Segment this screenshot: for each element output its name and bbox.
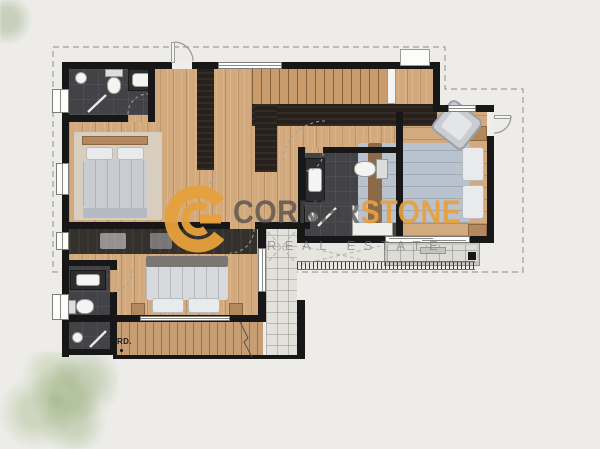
bathroom3-door-opening bbox=[110, 270, 117, 292]
stair-newel bbox=[387, 68, 396, 104]
balcony-railing bbox=[297, 261, 475, 270]
entry-door-leaf bbox=[171, 42, 175, 63]
roof-drain-label: RD. bbox=[117, 337, 132, 346]
bathroom3-toilet-tank bbox=[68, 300, 76, 314]
master-top-window bbox=[448, 105, 476, 112]
entry-door-swing bbox=[175, 42, 193, 61]
bedroom1-bed bbox=[83, 160, 147, 208]
bathroom1-wall-right bbox=[148, 68, 155, 122]
bedroom1-bed-foot bbox=[83, 208, 147, 218]
bathroom1-shower-head bbox=[75, 72, 87, 84]
bedroom2-terrace-window bbox=[258, 248, 266, 292]
bathroom1-toilet-tank bbox=[105, 69, 123, 77]
tree-illustration bbox=[0, 352, 118, 449]
wardrobe-clothes bbox=[150, 233, 172, 249]
bedroom2-bed-throw bbox=[146, 256, 228, 267]
stair-side-wall bbox=[255, 104, 277, 172]
bedroom1-pillow-right bbox=[117, 147, 144, 160]
roof-drain-dot bbox=[120, 349, 123, 352]
bathroom3-wall-top bbox=[62, 260, 117, 266]
stair-railing bbox=[252, 104, 437, 126]
tree-edge-smudge bbox=[0, 0, 34, 44]
bathroom2-toilet bbox=[354, 161, 376, 177]
floor-plan: CORNERSTONE REAL ESTATE RD. bbox=[0, 0, 600, 449]
bathroom3-sink bbox=[76, 274, 100, 286]
bedroom2-bottom-window bbox=[140, 316, 230, 321]
bedroom1-headboard bbox=[82, 136, 148, 145]
watermark-brand: CORNERSTONE bbox=[233, 194, 461, 231]
bedroom2-left-window bbox=[56, 232, 69, 250]
bathroom2-door-opening bbox=[305, 147, 323, 153]
entry-door-opening bbox=[172, 62, 192, 69]
bedroom1-window bbox=[56, 163, 69, 195]
bathroom3-shower-head bbox=[72, 332, 83, 343]
bathroom1-toilet bbox=[107, 77, 121, 94]
master-door-leaf bbox=[494, 115, 511, 119]
bedroom1-pillow-left bbox=[86, 147, 113, 160]
bathroom3-wall-bottom bbox=[62, 349, 117, 355]
lower-roof-edge bbox=[113, 355, 305, 359]
bathroom1-door-opening bbox=[128, 115, 148, 122]
watermark-brand-accent: STONE bbox=[361, 194, 462, 230]
bedroom2-pillow-left bbox=[152, 298, 184, 313]
master-door-opening bbox=[487, 112, 494, 136]
bathroom3-toilet bbox=[76, 299, 94, 314]
master-pillow-top bbox=[462, 147, 484, 181]
terrace-wall-right bbox=[297, 300, 305, 357]
bathroom2-toilet-tank bbox=[376, 159, 388, 179]
bathroom1-window bbox=[52, 89, 69, 113]
master-pillow-bottom bbox=[462, 185, 484, 219]
bathroom2-sink bbox=[308, 168, 322, 192]
wardrobe-clothes bbox=[100, 233, 126, 249]
top-wall-window bbox=[218, 62, 282, 69]
lower-roof-band bbox=[113, 322, 263, 357]
balcony-post bbox=[468, 252, 476, 260]
watermark-tagline: REAL ESTATE bbox=[267, 238, 446, 253]
chimney-box bbox=[400, 49, 430, 66]
bathroom3-window bbox=[52, 294, 69, 320]
armchair-cushion bbox=[441, 109, 473, 141]
bedroom-divider-wall bbox=[62, 222, 230, 229]
hall-wall-column bbox=[197, 69, 214, 170]
bedroom2-pillow-right bbox=[188, 298, 220, 313]
staircase bbox=[252, 68, 390, 104]
watermark-brand-primary: CORNER bbox=[233, 194, 361, 230]
